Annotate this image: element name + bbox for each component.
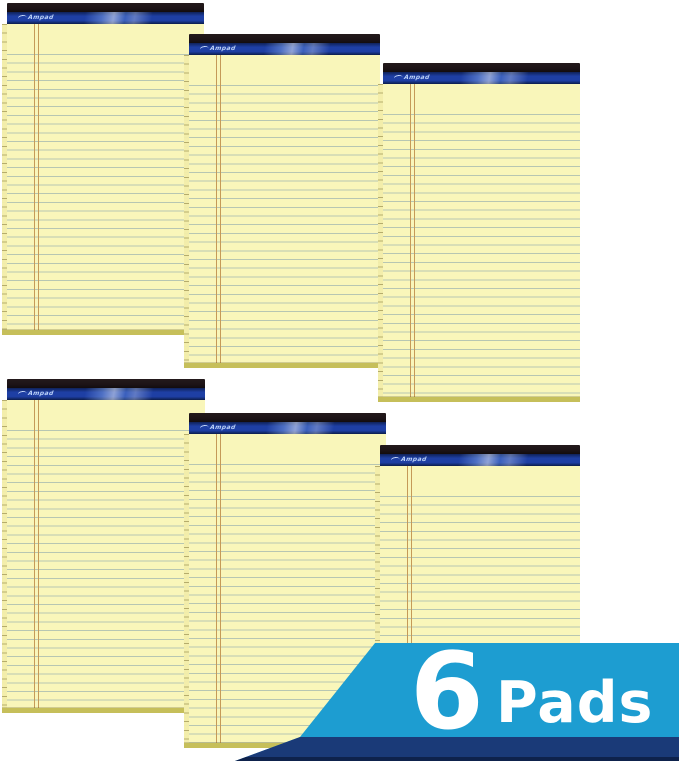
ampad-logo: Ampad	[210, 46, 236, 52]
pad-binding-blue: Ampad	[189, 43, 380, 55]
binding-reflection	[260, 422, 355, 434]
page-edge-left	[2, 24, 7, 335]
ampad-swoosh-icon	[200, 45, 210, 52]
ampad-logo: Ampad	[401, 457, 427, 463]
legal-pad-2: Ampad	[184, 34, 380, 368]
pad-binding-black	[380, 445, 580, 454]
page-edge-left	[2, 400, 7, 713]
pad-binding-blue: Ampad	[380, 454, 580, 466]
margin-line	[216, 55, 222, 364]
rule-lines	[378, 114, 580, 398]
binding-reflection	[452, 454, 548, 466]
margin-line	[410, 84, 416, 398]
pad-binding-blue: Ampad	[383, 72, 580, 84]
binding-reflection	[258, 43, 350, 55]
page-edge-left	[184, 434, 189, 748]
rule-lines	[2, 54, 204, 331]
badge-label: Pads	[496, 669, 653, 737]
ampad-swoosh-icon	[391, 456, 401, 463]
pad-binding-black	[189, 413, 386, 422]
ampad-logo: Ampad	[210, 425, 236, 431]
binding-reflection	[454, 72, 549, 84]
page-edge-bottom	[184, 363, 380, 368]
pad-binding-black	[7, 379, 205, 388]
ruled-paper	[2, 400, 205, 713]
pad-binding-blue: Ampad	[7, 388, 205, 400]
pad-binding-blue: Ampad	[7, 12, 204, 24]
ampad-logo: Ampad	[28, 391, 54, 397]
legal-pad-1: Ampad	[2, 3, 204, 335]
margin-line	[216, 434, 222, 744]
legal-pad-3: Ampad	[378, 63, 580, 402]
ampad-logo: Ampad	[404, 75, 430, 81]
page-edge-left	[378, 84, 383, 402]
ruled-paper	[2, 24, 204, 335]
badge-count: 6	[410, 631, 484, 753]
binding-reflection	[78, 388, 173, 400]
rule-lines	[184, 85, 380, 364]
pad-binding-black	[189, 34, 380, 43]
pad-binding-black	[7, 3, 204, 12]
page-edge-bottom	[2, 708, 205, 713]
margin-line	[34, 400, 40, 709]
pad-binding-blue: Ampad	[189, 422, 386, 434]
ampad-logo: Ampad	[28, 15, 54, 21]
ampad-swoosh-icon	[200, 424, 210, 431]
binding-reflection	[78, 12, 173, 24]
ampad-swoosh-icon	[18, 390, 28, 397]
legal-pad-4: Ampad	[2, 379, 205, 713]
page-edge-bottom	[378, 397, 580, 402]
ampad-swoosh-icon	[18, 14, 28, 21]
product-image: Ampad Ampad Ampad	[0, 0, 679, 761]
ruled-paper	[378, 84, 580, 402]
rule-lines	[2, 430, 205, 709]
page-edge-left	[184, 55, 189, 368]
ampad-swoosh-icon	[394, 74, 404, 81]
pad-binding-black	[383, 63, 580, 72]
page-edge-bottom	[2, 330, 204, 335]
ruled-paper	[184, 55, 380, 368]
margin-line	[34, 24, 40, 331]
